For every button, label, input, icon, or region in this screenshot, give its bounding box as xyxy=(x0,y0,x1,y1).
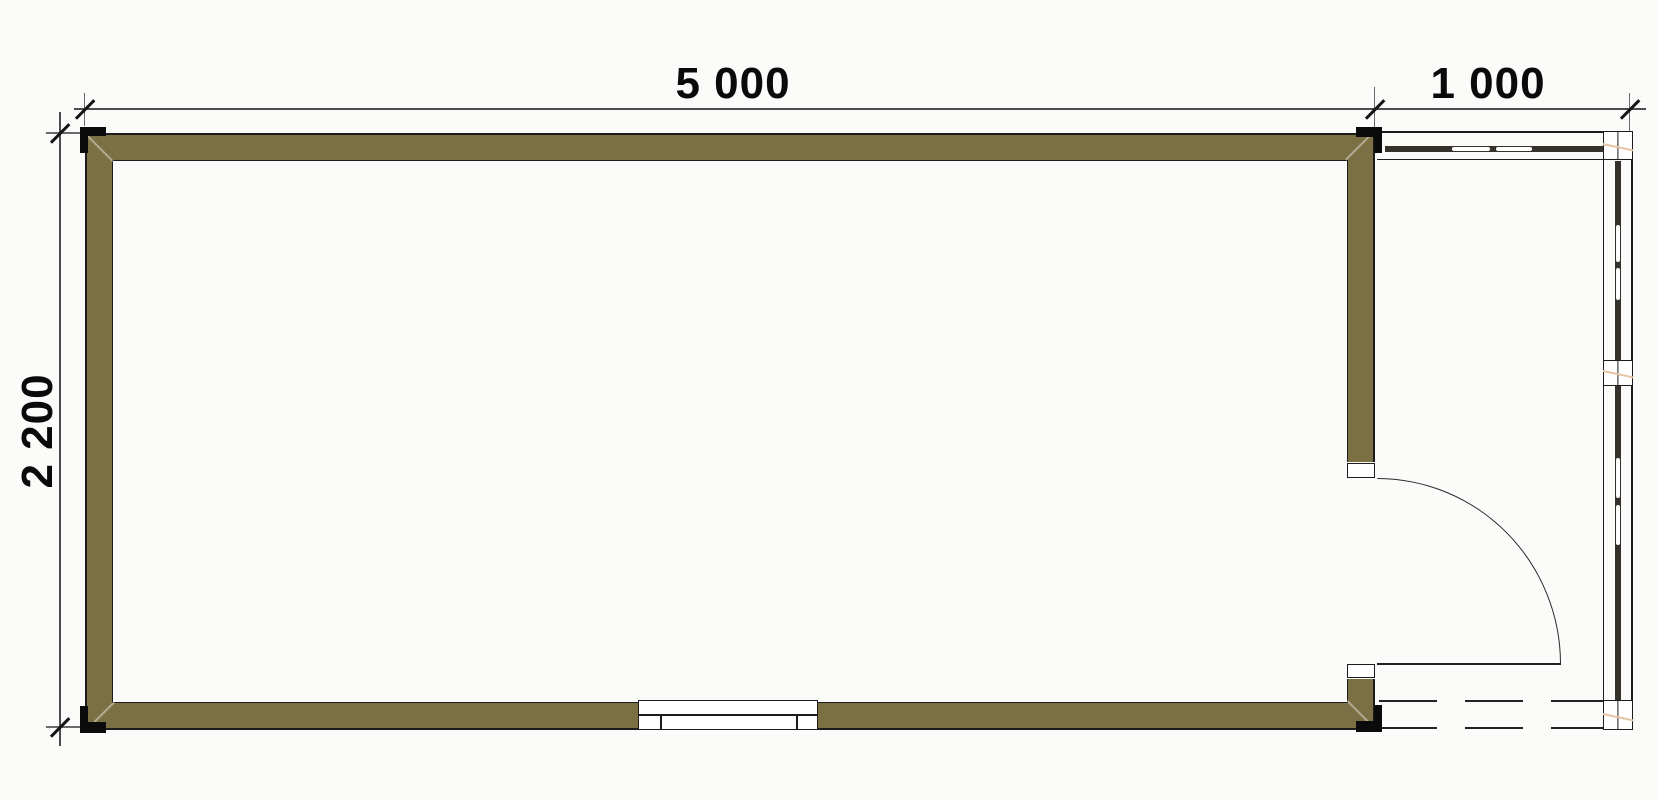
glazing-slot xyxy=(1616,268,1620,300)
post-mark xyxy=(1374,127,1382,153)
dimension-depth-label: 2 200 xyxy=(16,373,60,488)
door-opening xyxy=(1344,462,1377,679)
glazing-slot xyxy=(1496,147,1532,151)
glazing-slot xyxy=(1616,225,1620,262)
porch-wall-inner-line xyxy=(1377,159,1605,160)
post-mark xyxy=(80,127,88,153)
window-sill-line xyxy=(639,714,817,716)
porch-corner-post-bottom xyxy=(1603,700,1633,730)
post-divider xyxy=(1617,700,1618,730)
porch-threshold-dashed-line xyxy=(1379,700,1603,702)
porch-glazing-line xyxy=(1385,146,1603,152)
extension-line xyxy=(46,132,80,133)
dimension-width-label: 5 000 xyxy=(675,62,790,106)
porch-corner-post-top xyxy=(1603,131,1633,160)
dimension-porch-width-label: 1 000 xyxy=(1430,62,1545,106)
extension-line xyxy=(1629,93,1630,131)
glazing-slot xyxy=(1616,505,1620,545)
door-swing-arc xyxy=(1377,478,1561,664)
porch-wall-inner-line xyxy=(1603,159,1604,701)
floor-plan-canvas: 5 000 1 000 2 200 xyxy=(0,0,1657,800)
glazing-slot xyxy=(1616,458,1620,498)
door-jamb-top xyxy=(1347,463,1375,478)
extension-line xyxy=(46,726,80,727)
post-mark xyxy=(1374,705,1382,732)
post-mark xyxy=(80,706,88,733)
porch-threshold-dashed-line xyxy=(1379,727,1603,729)
glazing-slot xyxy=(1452,147,1490,151)
porch-mullion-post xyxy=(1603,360,1633,386)
porch-wall-outer-line xyxy=(1377,131,1633,133)
window xyxy=(638,700,818,730)
porch-wall-outer-line xyxy=(1631,131,1633,730)
window-frame-tick xyxy=(796,714,798,729)
door-jamb-bottom xyxy=(1347,664,1375,678)
dimension-line-horizontal xyxy=(74,108,1646,109)
window-frame-tick xyxy=(660,714,662,729)
interior-floor xyxy=(112,160,1348,703)
